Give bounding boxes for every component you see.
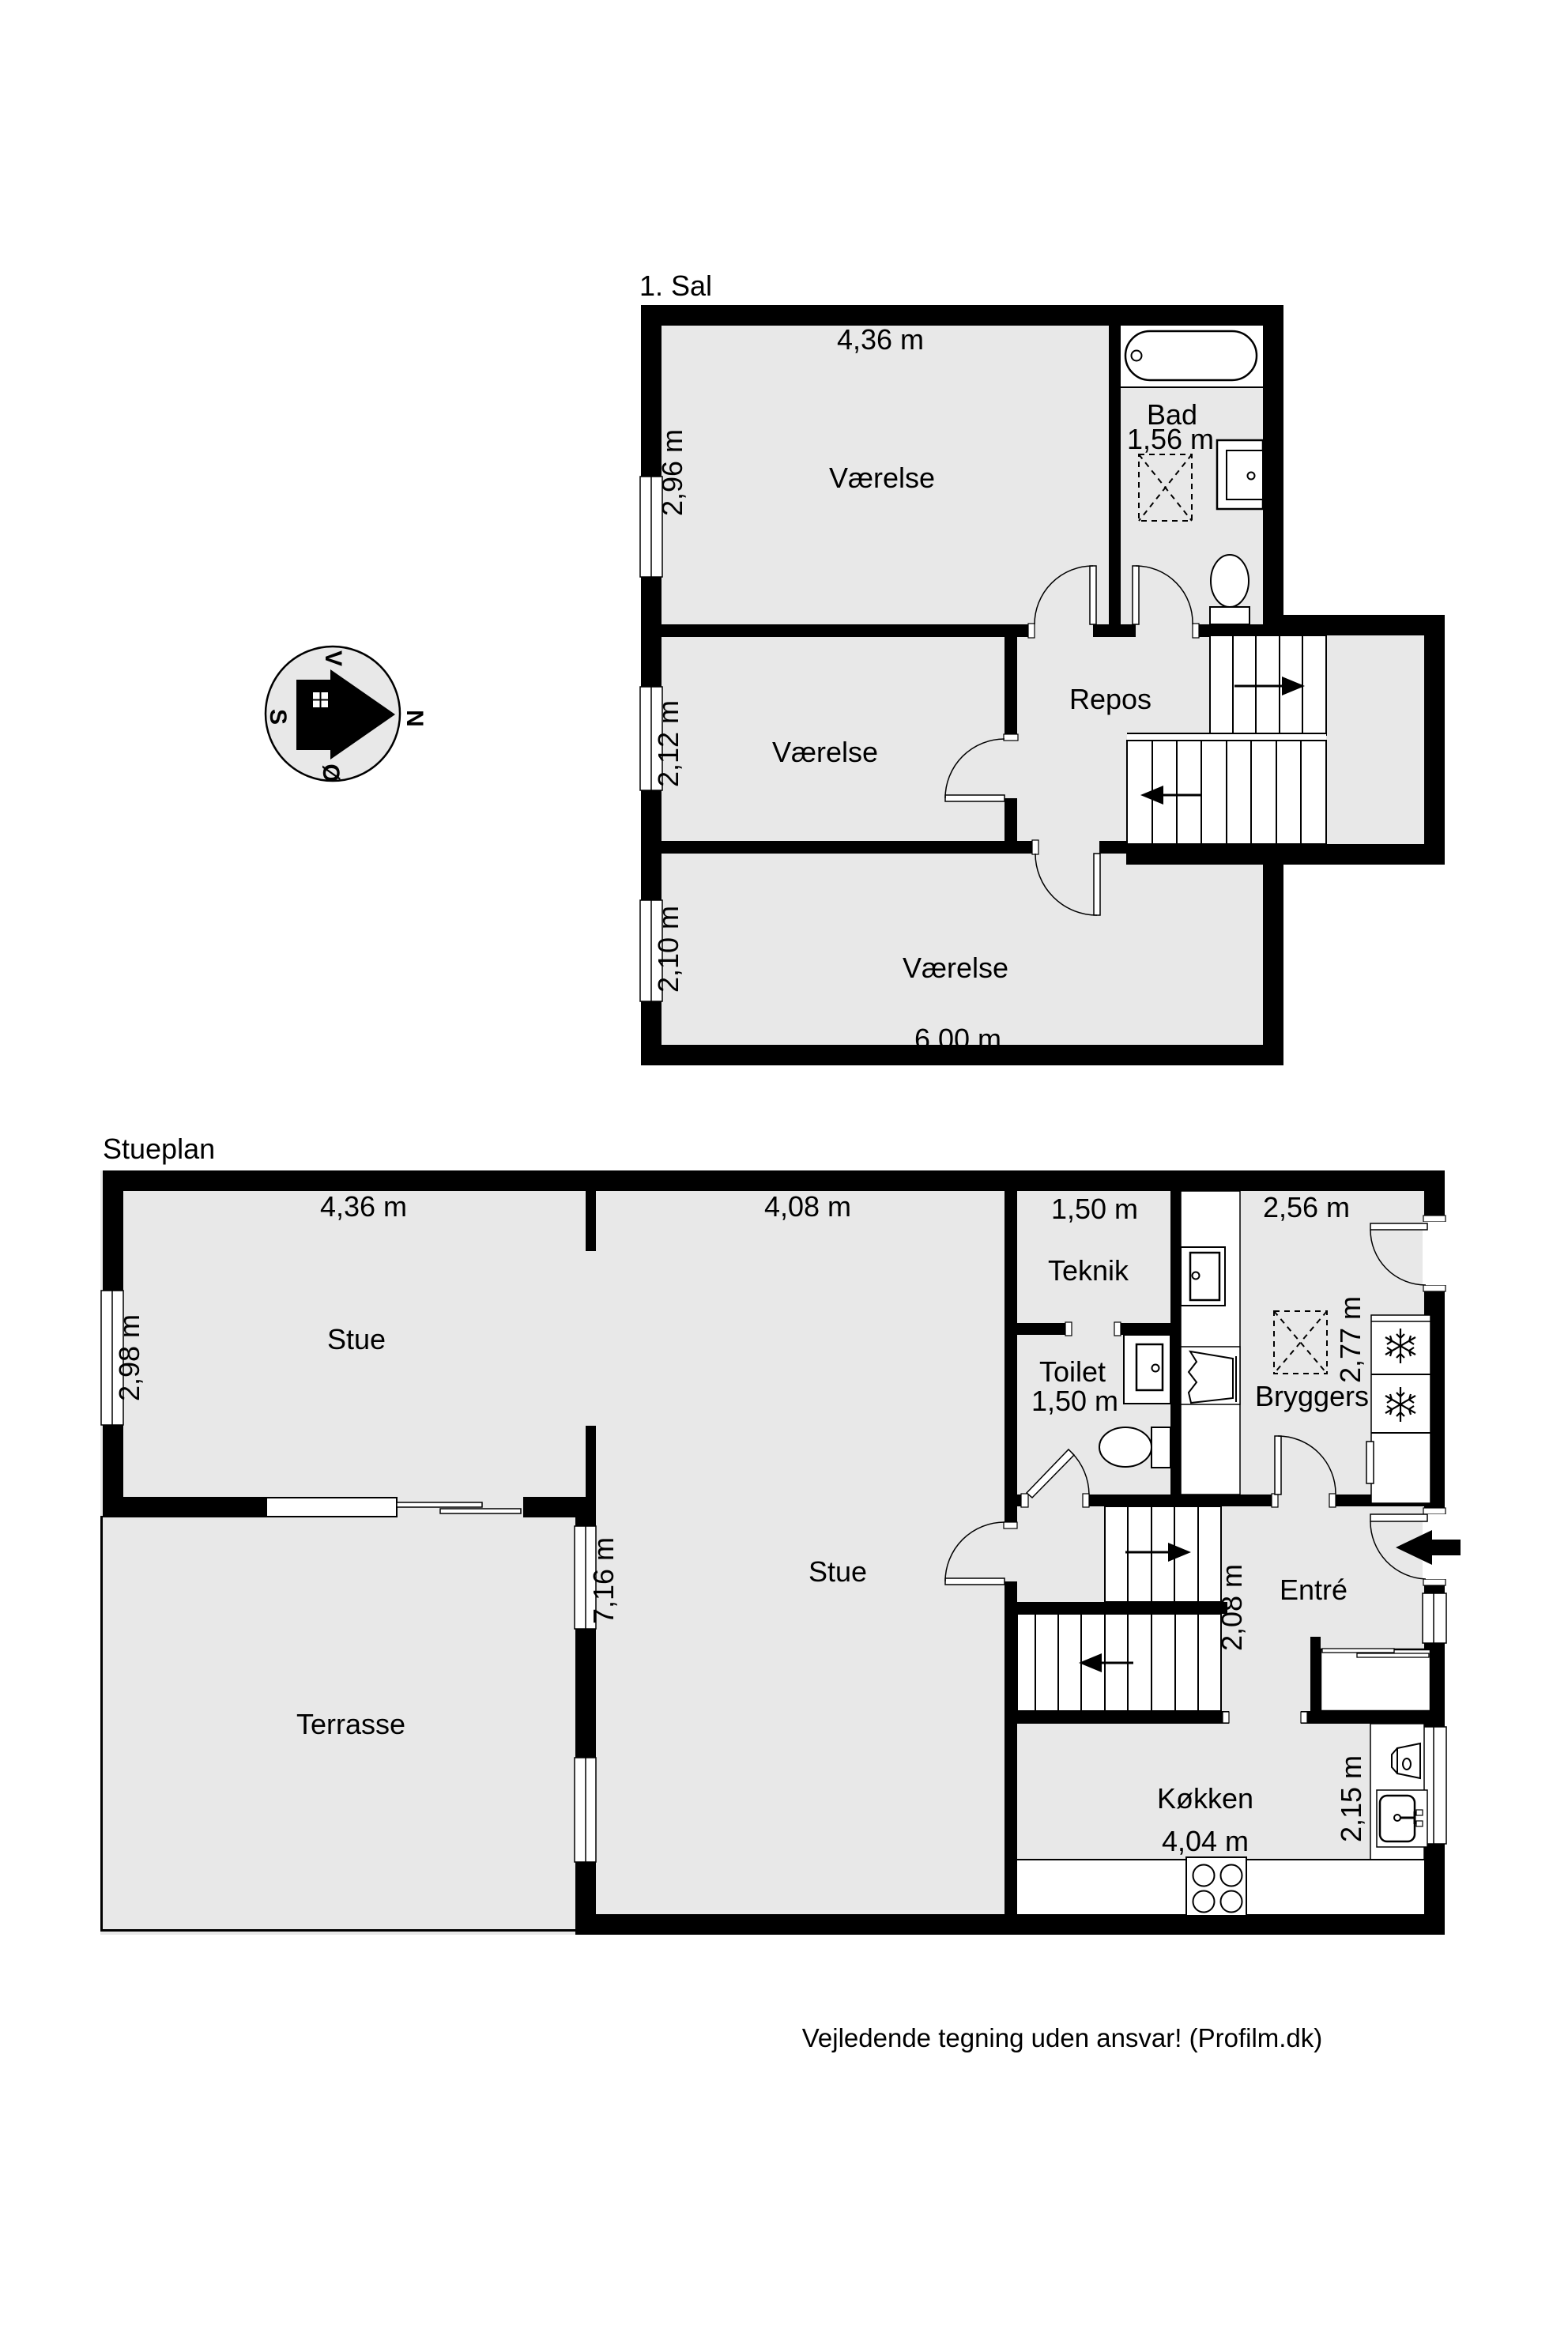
svg-text:Værelse: Værelse — [829, 462, 935, 494]
svg-text:Bryggers: Bryggers — [1255, 1380, 1369, 1412]
svg-text:2,56 m: 2,56 m — [1263, 1191, 1350, 1223]
svg-text:Teknik: Teknik — [1048, 1254, 1129, 1287]
svg-text:V: V — [320, 650, 346, 666]
svg-text:4,04 m: 4,04 m — [1162, 1825, 1249, 1857]
svg-text:Stue: Stue — [808, 1555, 867, 1588]
svg-text:S: S — [265, 709, 291, 725]
svg-text:2,15 m: 2,15 m — [1335, 1755, 1367, 1842]
svg-text:Stue: Stue — [327, 1323, 386, 1355]
svg-text:2,98 m: 2,98 m — [113, 1314, 145, 1401]
svg-text:Stueplan: Stueplan — [103, 1133, 215, 1165]
svg-text:Vejledende tegning uden ansvar: Vejledende tegning uden ansvar! (Profilm… — [802, 2023, 1323, 2052]
svg-text:Værelse: Værelse — [772, 736, 878, 768]
svg-text:1,56 m: 1,56 m — [1127, 423, 1214, 455]
svg-text:4,36 m: 4,36 m — [837, 323, 924, 356]
svg-text:Ø: Ø — [318, 763, 344, 782]
svg-text:Entré: Entré — [1280, 1574, 1347, 1606]
svg-text:N: N — [401, 710, 428, 727]
svg-text:2,77 m: 2,77 m — [1334, 1296, 1366, 1383]
svg-text:2,96 m: 2,96 m — [656, 429, 688, 516]
svg-text:Værelse: Værelse — [903, 952, 1008, 984]
svg-text:4,08 m: 4,08 m — [764, 1190, 851, 1223]
svg-text:Køkken: Køkken — [1157, 1782, 1253, 1815]
svg-text:6,00 m: 6,00 m — [914, 1023, 1001, 1055]
svg-text:Repos: Repos — [1069, 683, 1151, 715]
svg-text:4,36 m: 4,36 m — [320, 1190, 407, 1223]
svg-text:2,10 m: 2,10 m — [652, 906, 684, 993]
svg-text:1,50 m: 1,50 m — [1031, 1385, 1118, 1417]
svg-text:1,50 m: 1,50 m — [1051, 1193, 1138, 1225]
svg-text:2,12 m: 2,12 m — [652, 700, 684, 787]
svg-text:Toilet: Toilet — [1039, 1355, 1106, 1388]
svg-text:Terrasse: Terrasse — [296, 1708, 405, 1740]
svg-text:1. Sal: 1. Sal — [639, 269, 712, 302]
svg-text:7,16 m: 7,16 m — [587, 1537, 620, 1624]
svg-text:2,08 m: 2,08 m — [1216, 1564, 1248, 1651]
